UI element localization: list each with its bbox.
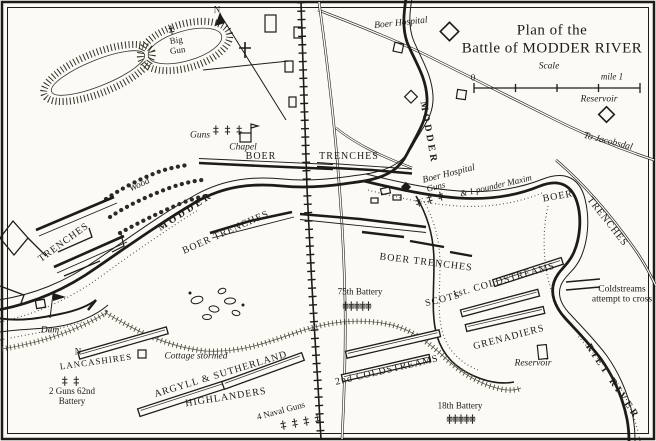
battery-75-label: 75th Battery: [338, 288, 383, 297]
reservoir-top-icon: [599, 107, 615, 123]
compass-north-label: N: [214, 6, 221, 15]
battery-75-icons: ‡‡‡‡‡: [343, 301, 372, 312]
cottage-stormed-label: Cottage stormed: [164, 352, 227, 362]
big-gun-label: Big Gun: [162, 34, 192, 57]
reservoir-top-label: Reservoir: [581, 95, 618, 105]
two-guns-icons: ‡ ‡: [62, 376, 80, 387]
boer-label-west: BOER: [246, 152, 277, 162]
coldstreams-attempt-label: Coldstreams attempt to cross: [583, 285, 656, 306]
dam-label: Dam: [41, 326, 59, 336]
scale-label: Scale: [539, 62, 560, 72]
trenches-label-east: TRENCHES: [319, 152, 379, 162]
map-title-line1: Plan of the: [517, 24, 588, 39]
scale-mile: mile 1: [601, 73, 623, 82]
reservoir-bottom-label: Reservoir: [515, 359, 552, 369]
battery-18-label: 18th Battery: [438, 402, 483, 411]
guns-chapel-icons: ‡ ‡ ‡: [213, 125, 243, 136]
reservoir-bottom-icon: [537, 345, 547, 360]
battle-map: Plan of the Battle of MODDER RIVER Scale…: [0, 0, 656, 441]
map-title-line2: Battle of MODDER RIVER: [462, 42, 643, 57]
scale-zero: 0: [471, 74, 476, 83]
cottage-icon: [138, 350, 146, 358]
battery-18-icons: ‡‡‡‡‡: [447, 414, 476, 425]
kopje-hill-hachure: [37, 12, 236, 113]
hospital-icon: [440, 22, 458, 40]
river-pools: [189, 287, 244, 319]
n-marker-label: N: [75, 348, 82, 357]
two-guns-battery-label: 2 Guns 62nd Battery: [39, 387, 105, 407]
church-cross-icon: [239, 42, 251, 58]
guns-chapel-label: Guns: [190, 131, 210, 141]
